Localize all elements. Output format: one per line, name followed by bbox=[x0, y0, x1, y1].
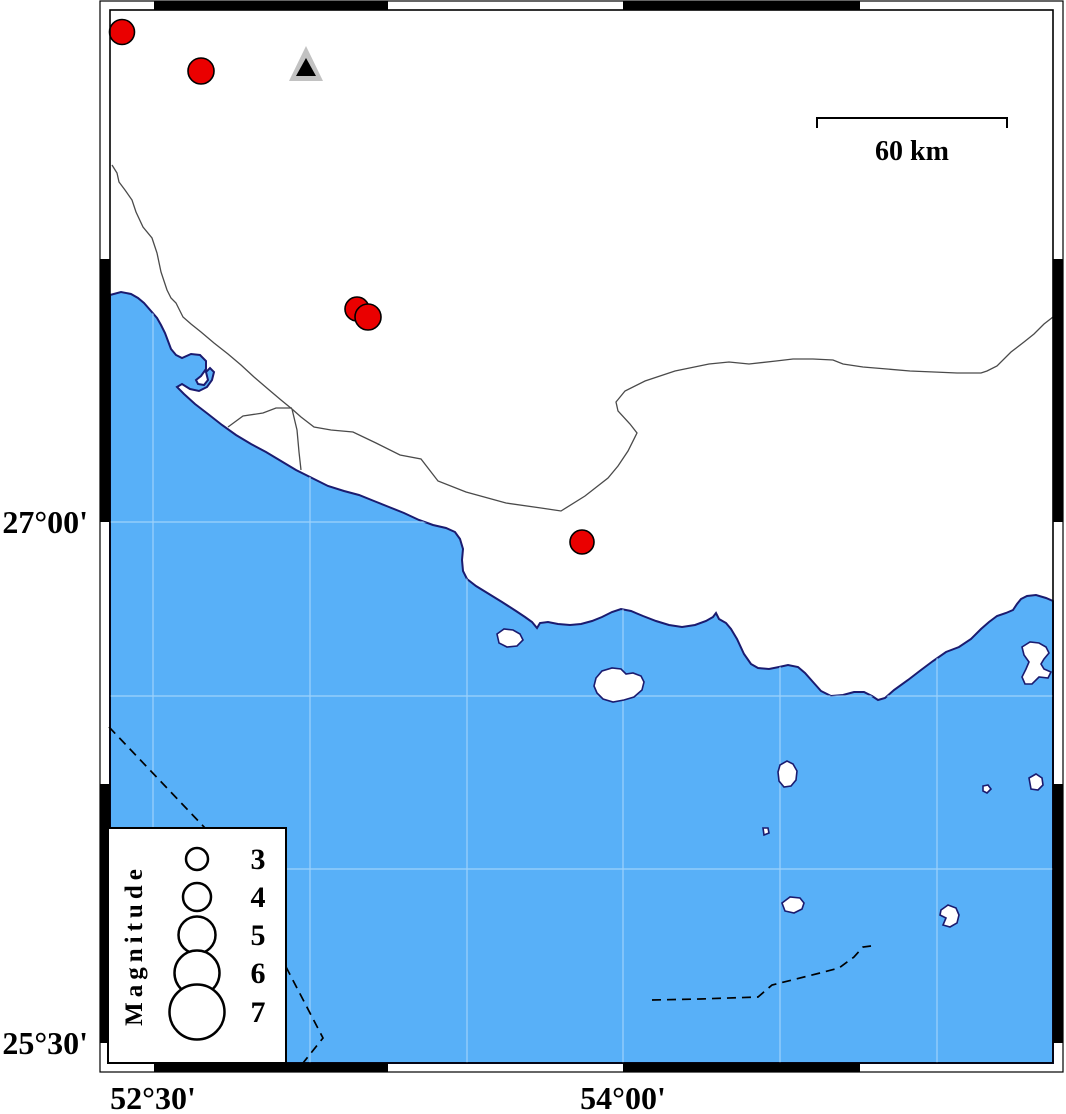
earthquake-marker bbox=[355, 304, 381, 330]
frame-tick-segment-left bbox=[100, 259, 110, 522]
island bbox=[763, 828, 769, 835]
river-line bbox=[228, 408, 292, 427]
earthquake-marker bbox=[110, 20, 135, 45]
legend-magnitude-label: 3 bbox=[251, 843, 266, 876]
legend-magnitude-label: 6 bbox=[251, 957, 266, 990]
lat-label-25-30: 25°30' bbox=[2, 1025, 88, 1061]
scalebar-label: 60 km bbox=[875, 136, 949, 167]
lat-label-27-00: 27°00' bbox=[2, 504, 88, 540]
river-line bbox=[292, 409, 301, 470]
island bbox=[778, 761, 797, 787]
island bbox=[1029, 774, 1043, 790]
legend-magnitude-label: 7 bbox=[251, 996, 266, 1029]
earthquake-marker bbox=[570, 530, 594, 554]
legend-magnitude-circle bbox=[186, 848, 208, 870]
frame-tick-segment-top bbox=[154, 1, 388, 10]
lon-label-52-30: 52°30' bbox=[110, 1080, 196, 1114]
legend-magnitude-label: 4 bbox=[251, 881, 266, 914]
magnitude-legend: Magnitude 34567 bbox=[108, 828, 286, 1063]
legend-magnitude-circle bbox=[170, 985, 225, 1040]
legend-magnitude-circle bbox=[183, 883, 211, 911]
earthquake-marker bbox=[188, 58, 214, 84]
frame-tick-segment-top bbox=[623, 1, 860, 10]
lon-label-54-00: 54°00' bbox=[580, 1080, 666, 1114]
frame-tick-segment-right bbox=[1053, 259, 1063, 522]
frame-tick-segment-bottom bbox=[623, 1063, 860, 1072]
map-page: 60 km Magnitude 34567 27°00' 25°30' 52°3… bbox=[0, 0, 1066, 1114]
legend-magnitude-label: 5 bbox=[251, 919, 266, 952]
scalebar: 60 km bbox=[817, 118, 1007, 167]
station-marker bbox=[289, 46, 323, 81]
scalebar-bracket bbox=[817, 118, 1007, 128]
frame-tick-segment-bottom bbox=[154, 1063, 388, 1072]
legend-title: Magnitude bbox=[121, 864, 148, 1026]
frame-tick-segment-right bbox=[1053, 784, 1063, 1043]
legend-magnitude-circle bbox=[179, 917, 216, 954]
map-canvas: 60 km Magnitude 34567 27°00' 25°30' 52°3… bbox=[0, 0, 1066, 1114]
island bbox=[940, 905, 959, 927]
